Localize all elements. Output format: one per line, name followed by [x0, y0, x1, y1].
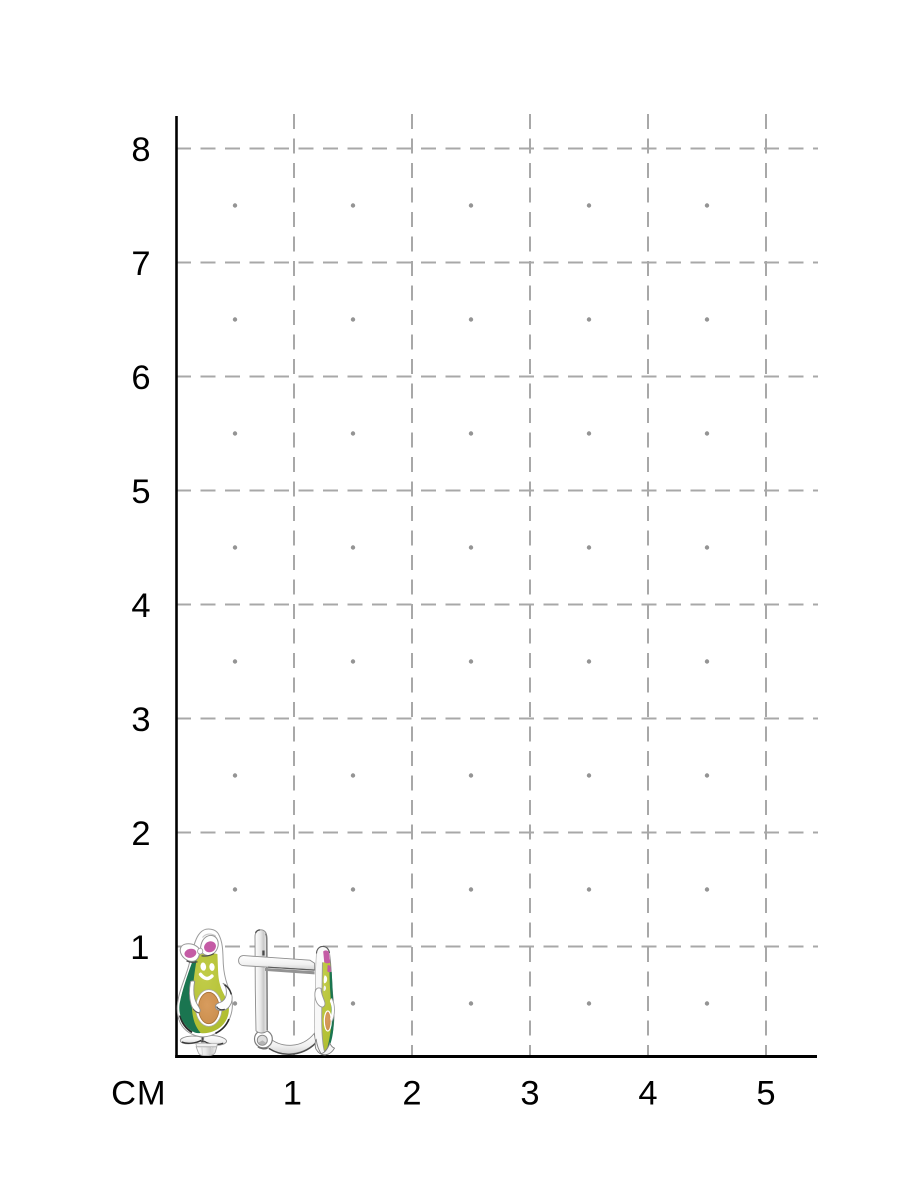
svg-text:CM: CM — [111, 1075, 166, 1113]
svg-text:8: 8 — [131, 131, 150, 169]
svg-text:6: 6 — [131, 359, 150, 397]
svg-text:4: 4 — [638, 1075, 657, 1113]
svg-text:1: 1 — [130, 929, 149, 967]
svg-text:2: 2 — [402, 1075, 421, 1113]
svg-text:3: 3 — [131, 701, 150, 739]
svg-text:3: 3 — [520, 1075, 539, 1113]
svg-text:5: 5 — [131, 473, 150, 511]
svg-text:2: 2 — [131, 815, 150, 853]
svg-text:5: 5 — [756, 1075, 775, 1113]
svg-text:7: 7 — [131, 245, 150, 283]
svg-text:4: 4 — [131, 587, 150, 625]
svg-text:1: 1 — [283, 1075, 302, 1113]
